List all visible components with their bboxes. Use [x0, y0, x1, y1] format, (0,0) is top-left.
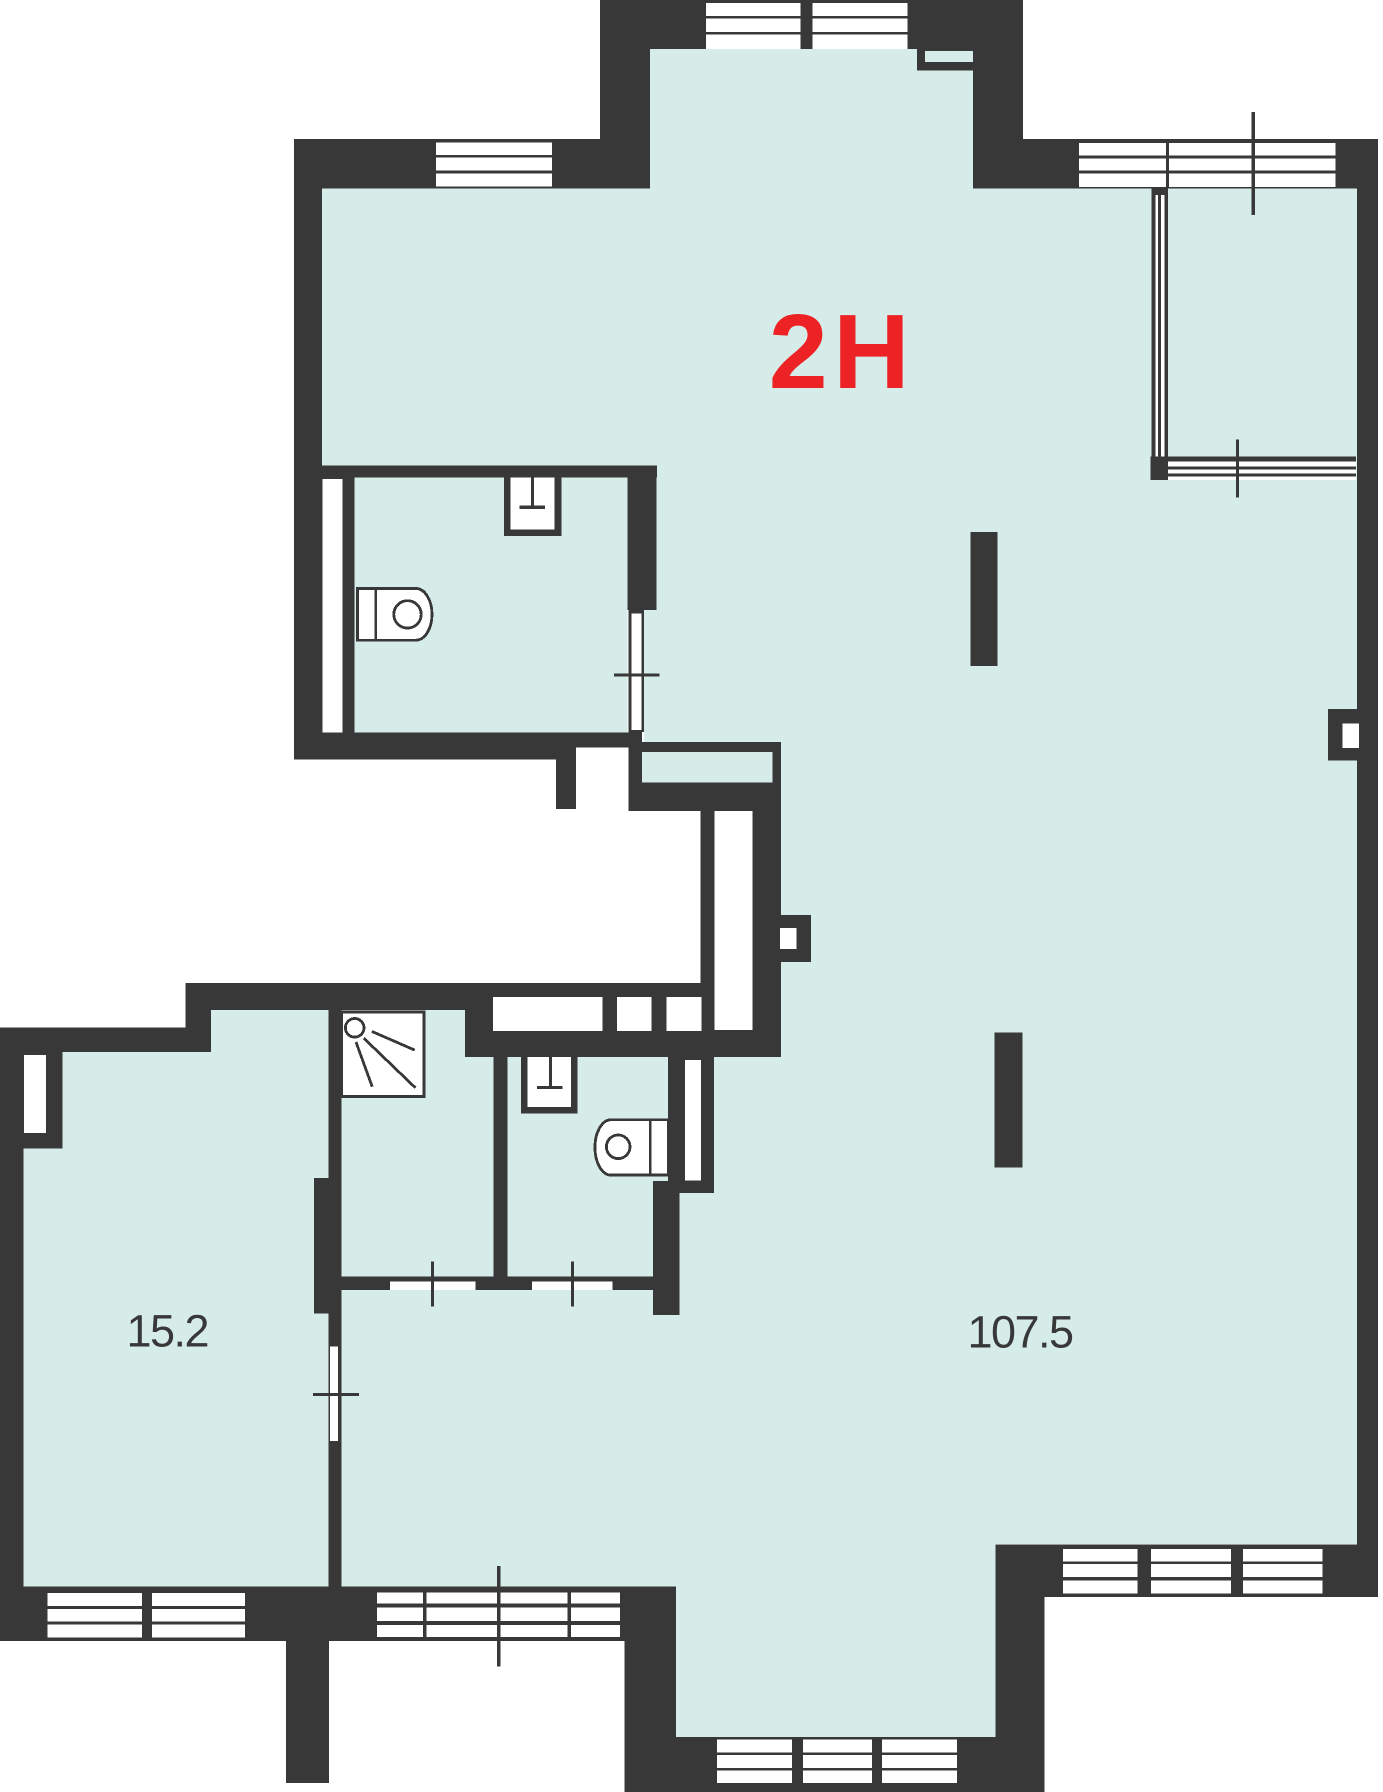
- svg-text:2H: 2H: [769, 293, 916, 411]
- svg-text:15.2: 15.2: [127, 1305, 209, 1356]
- svg-text:107.5: 107.5: [967, 1307, 1073, 1358]
